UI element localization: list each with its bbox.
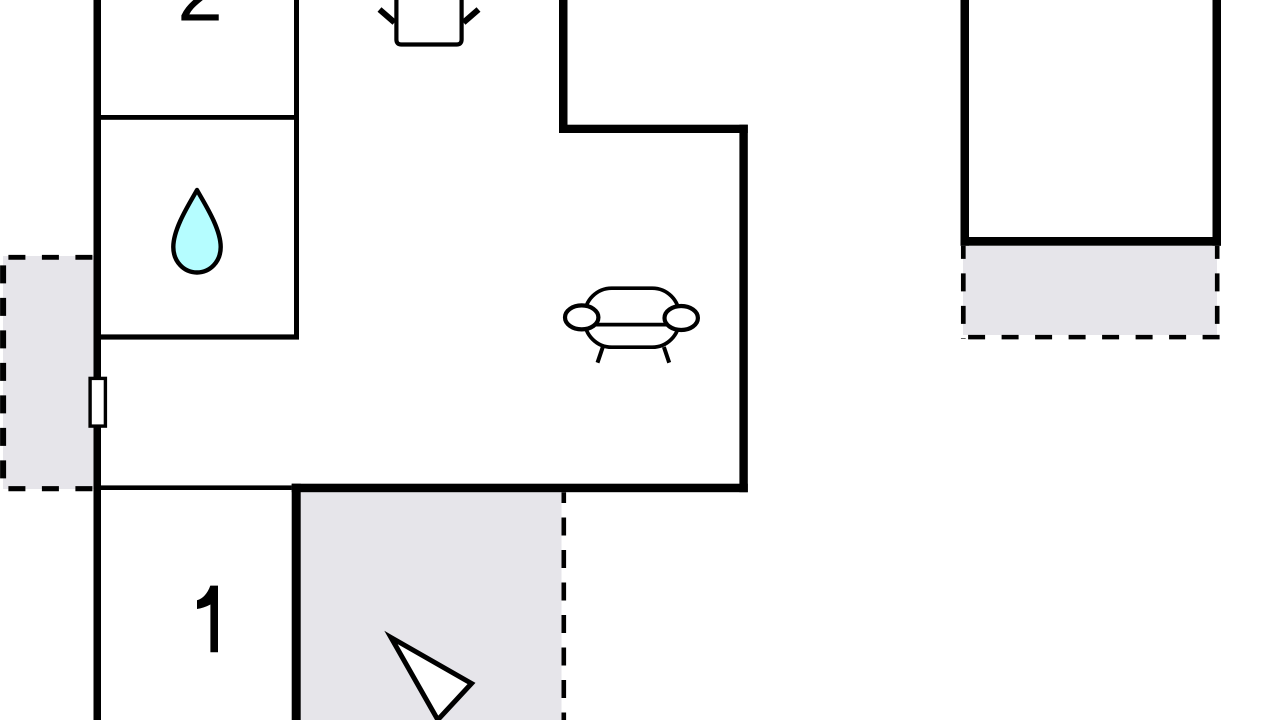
svg-text:2: 2 [177, 0, 223, 39]
